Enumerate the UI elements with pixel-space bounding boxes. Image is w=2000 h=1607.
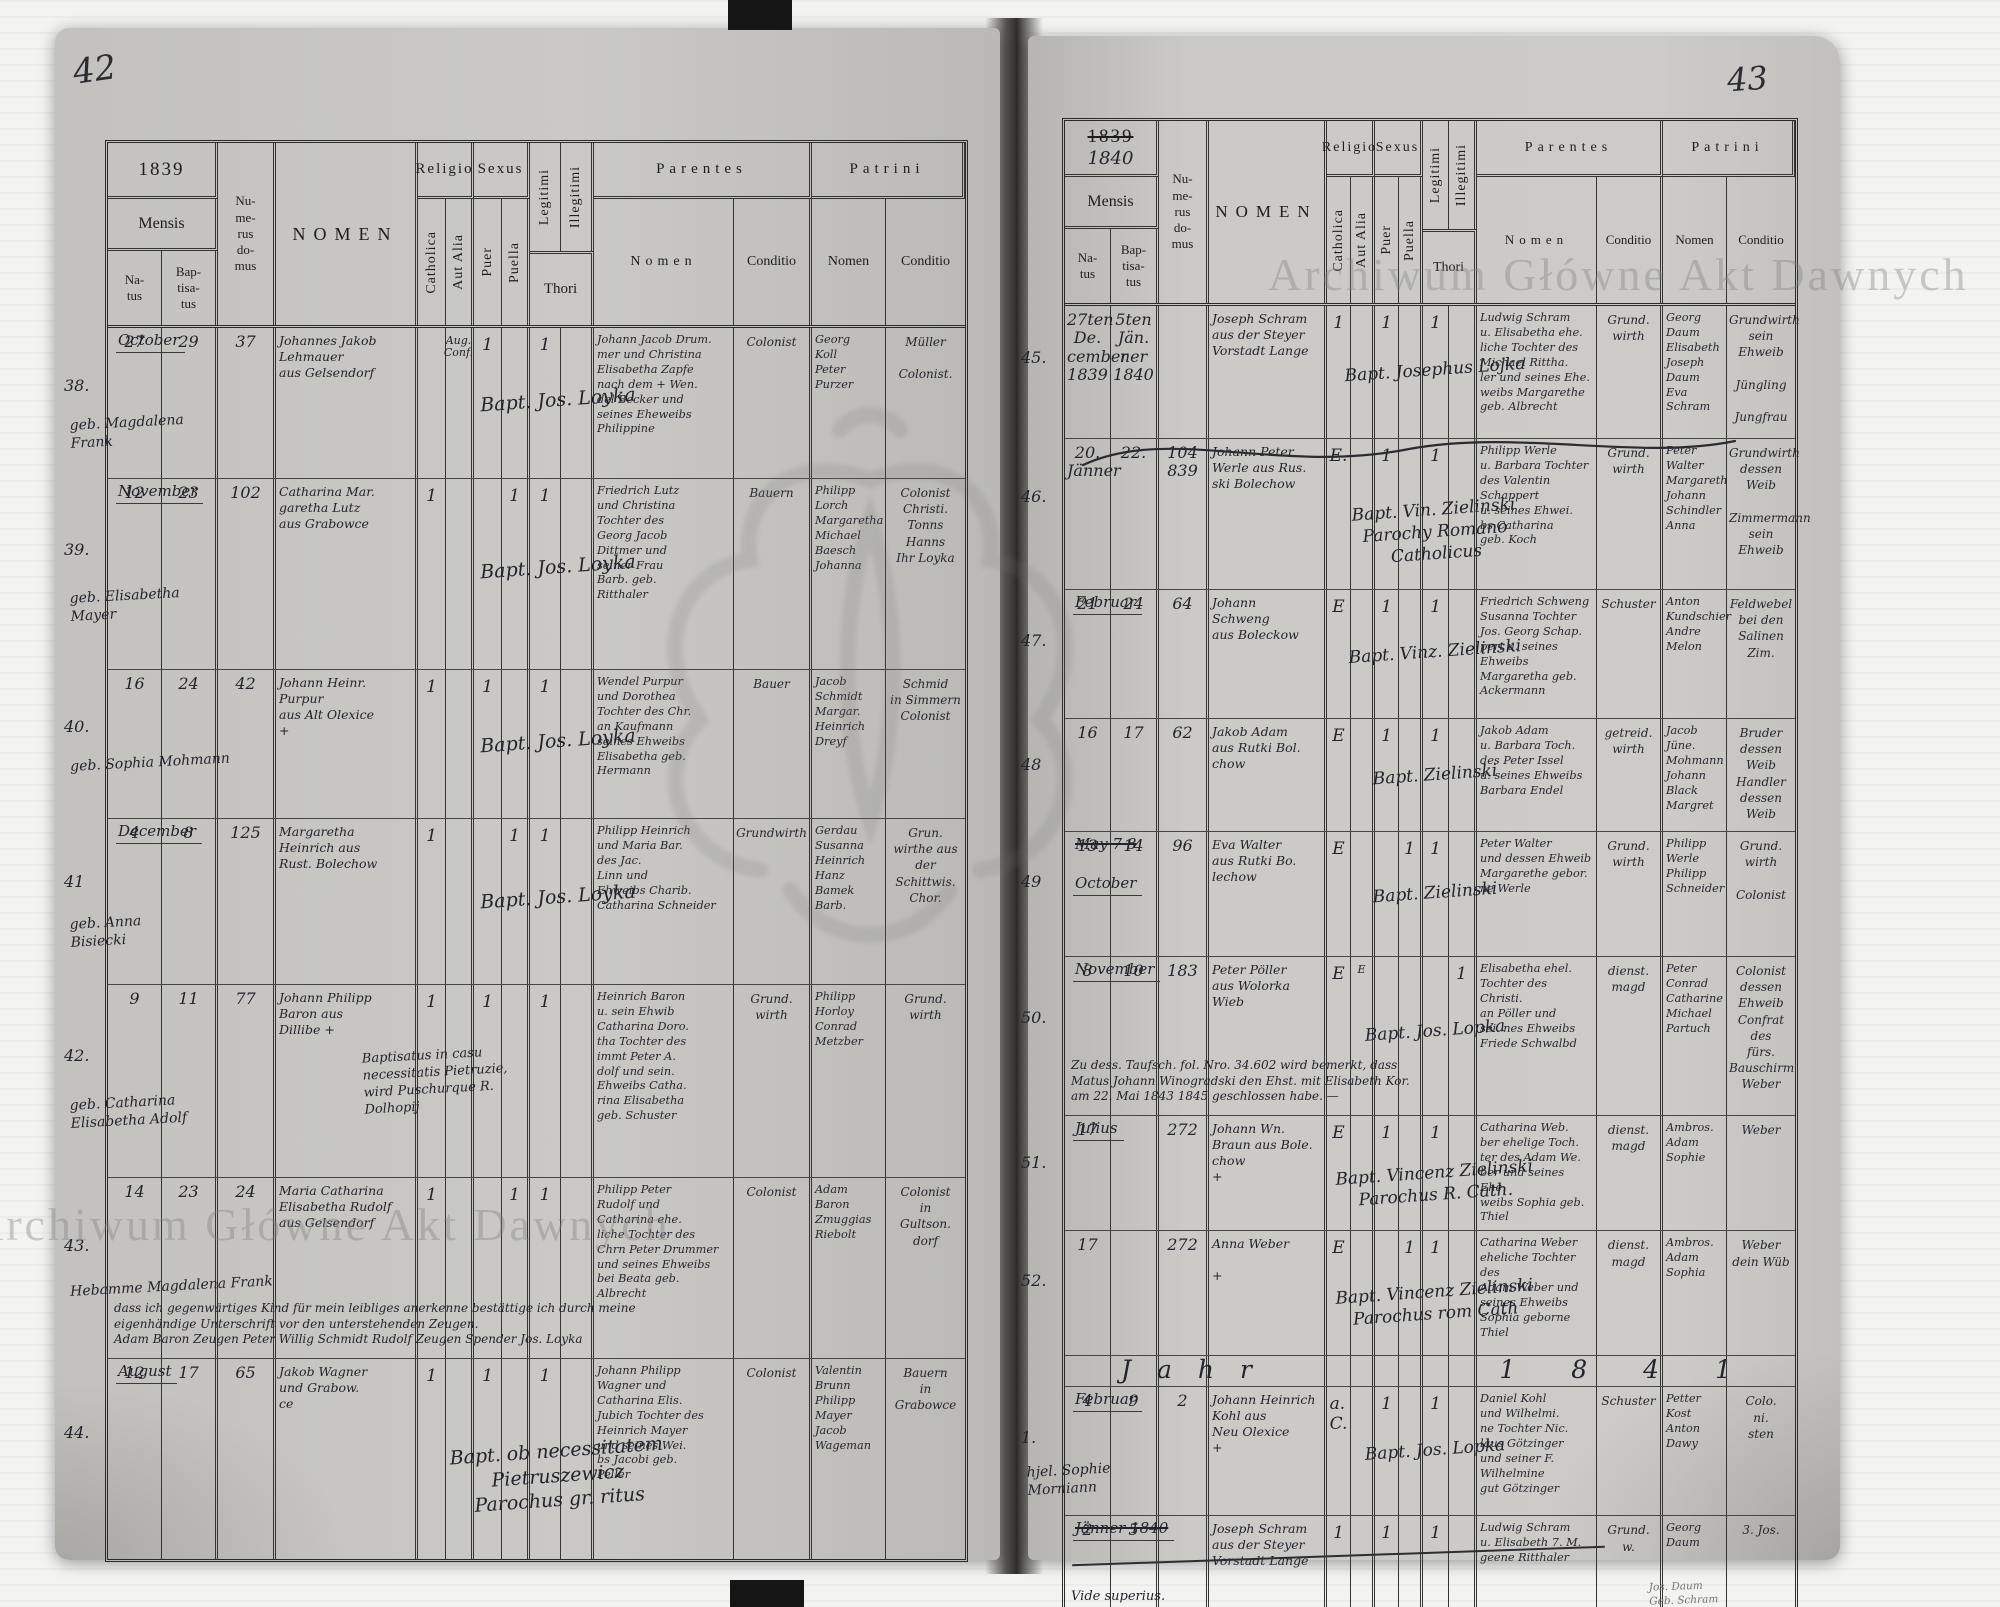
entry-month: May 7 8October (1073, 835, 1142, 896)
entry-parents-condition: Grundwirth (734, 819, 812, 984)
table-header-right: 1839 1840 Mensis Na- tus Bap- tisa- tus … (1065, 121, 1795, 306)
entry-number: 47. (1021, 631, 1046, 650)
col-header-puer: Puer (1375, 177, 1399, 303)
entry-godparents-condition: Weber dein Wüb (1727, 1231, 1795, 1355)
entry-godparents-names: Philipp Werle Philipp Schneider (1663, 832, 1727, 956)
entry-house-number: 37 (218, 328, 276, 478)
entry-baptisatus-day: 24 (162, 670, 218, 818)
col-header-nomen: NOMEN (276, 143, 418, 325)
entry-godparents-names: Philipp Horloy Conrad Metzber (812, 985, 886, 1177)
entry-house-number: 272 (1159, 1116, 1209, 1230)
entry-child-name: Joseph Schram aus der Steyer Vorstadt La… (1209, 1516, 1327, 1607)
entry-house-number: 77 (218, 985, 276, 1177)
col-header-puella: Puella (502, 199, 530, 325)
entry-house-number: 102 (218, 479, 276, 669)
register-entry-row: 131496Eva Walter aus Rutki Bo. lechowE11… (1065, 831, 1795, 956)
entry-number: 39. (64, 540, 89, 559)
entry-child-name: Jakob Wagner und Grabow. ce (276, 1359, 418, 1559)
entry-number: 45. (1021, 348, 1046, 367)
entry-parents-condition: Grund. wirth (1597, 306, 1663, 438)
entry-godparents-names: Georg Daum Elisabeth Joseph Daum Eva Sch… (1663, 306, 1727, 438)
entry-witness-note: dass ich gegenwärtiges Kind für mein lei… (114, 1301, 734, 1348)
entry-number: 46. (1021, 487, 1046, 506)
entry-month-struck: Jänner 1840 (1075, 1519, 1168, 1539)
entry-godparents-condition: Grun. wirthe aus der Schittwis. Chor. (886, 819, 965, 984)
entry-parents-condition: getreid. wirth (1597, 719, 1663, 831)
register-table-left: 1839 Mensis Na- tus Bap- tisa- tus Nu- m… (105, 140, 968, 1562)
entry-godparents-condition: Colonist Christi. Tonns Hanns Ihr Loyka (886, 479, 965, 669)
entry-natus-day: 27ten De. cember 1839 (1065, 306, 1111, 438)
entry-godparents-names: Gerdau Susanna Heinrich Hanz Bamek Barb. (812, 819, 886, 984)
col-header-catholica: Catholica (1327, 177, 1351, 303)
entry-number: 51. (1021, 1153, 1046, 1172)
col-header-mensis: Mensis (108, 199, 218, 251)
register-entry-row: 25Joseph Schram aus der Steyer Vorstadt … (1065, 1515, 1795, 1607)
entry-godparents-condition: Müller Colonist. (886, 328, 965, 478)
col-header-natus: Na- tus (108, 251, 162, 325)
entry-godparents-names: Adam Baron Zmuggias Riebolt (812, 1178, 886, 1358)
col-header-parentes: Parentes (594, 143, 812, 199)
entry-baptisatus-day: 17 (1111, 719, 1159, 831)
entry-natus-day: 16 (108, 670, 162, 818)
year-divider-label: Jahr (1121, 1354, 1278, 1387)
entry-parents-condition: Schuster (1597, 590, 1663, 718)
entry-house-number: 125 (218, 819, 276, 984)
entry-house-number: 62 (1159, 719, 1209, 831)
col-header-patrini-conditio: Conditio (1727, 177, 1795, 303)
col-header-legitimi: Legitimi (530, 143, 561, 251)
register-entry-row: 20. Jänner22.104 839Johann Peter Werle a… (1065, 438, 1795, 589)
register-table-right: 1839 1840 Mensis Na- tus Bap- tisa- tus … (1062, 118, 1798, 1607)
entry-number: 38. (64, 376, 89, 395)
entry-sex-boy-mark: 1 (1375, 1516, 1399, 1607)
entry-month-new: October (1075, 874, 1136, 894)
col-header-parentes-conditio: Conditio (1597, 177, 1663, 303)
col-header-illegitimi: Illegitimi (1449, 121, 1477, 229)
entry-number: 43. (64, 1236, 89, 1255)
entry-month: Februar (1073, 1390, 1142, 1412)
entry-natus-day: 12 (108, 1359, 162, 1559)
register-entry-row: 810183Peter Pöller aus Wolorka WiebEE1El… (1065, 956, 1795, 1115)
col-header-patrini-conditio: Conditio (886, 199, 965, 325)
col-header-legitimi: Legitimi (1423, 121, 1449, 229)
entry-godparents-condition: Weber (1727, 1116, 1795, 1230)
binding-tape-top (728, 0, 792, 30)
register-entry-row: 17272Johann Wn. Braun aus Bole. chow +E1… (1065, 1115, 1795, 1230)
entry-parents-condition: Bauer (734, 670, 812, 818)
entry-number: 1. (1021, 1428, 1036, 1447)
year-struck: 1839 (1088, 126, 1134, 148)
entry-number: 44. (64, 1423, 89, 1442)
col-header-baptisatus: Bap- tisa- tus (162, 251, 218, 325)
register-entry-row: 48125Margaretha Heinrich aus Rust. Bolec… (108, 818, 965, 984)
entry-parents-condition: dienst. magd (1597, 1231, 1663, 1355)
entry-natus-day: 16 (1065, 719, 1111, 831)
entry-parents-condition: Colonist (734, 328, 812, 478)
col-header-patrini-nomen: Nomen (812, 199, 886, 325)
archival-scan: Archiwum Główne Akt Dawnych Archiwum Głó… (0, 0, 2000, 1607)
entry-illegitimate-mark (1449, 1516, 1477, 1607)
entry-godparents-names: Petter Kost Anton Dawy (1663, 1387, 1727, 1515)
binding-tape-bottom (730, 1580, 804, 1607)
col-header-parentes-nomen: Nomen (594, 199, 734, 325)
col-header-puer: Puer (474, 199, 502, 325)
entry-month: Februar (1073, 593, 1142, 615)
col-header-illegitimi: Illegitimi (561, 143, 594, 251)
entry-number: 42. (64, 1046, 89, 1065)
entry-number: 52. (1021, 1271, 1046, 1290)
entry-godparents-condition: Grund. wirth (886, 985, 965, 1177)
entry-godparents-names: Philipp Lorch Margaretha Michael Baesch … (812, 479, 886, 669)
entry-godparents-names: Jacob Jüne. Mohmann Johann Black Margret (1663, 719, 1727, 831)
entry-number: 41 (64, 872, 84, 891)
col-header-puella: Puella (1399, 177, 1423, 303)
entry-month: December (116, 822, 202, 844)
entry-godparents-condition: Bauern in Grabowce (886, 1359, 965, 1559)
col-header-sexus: Sexus (474, 143, 530, 199)
entry-month: November (1073, 960, 1160, 982)
col-header-mensis: Mensis (1065, 177, 1159, 229)
entry-sex-girl-mark (1399, 1516, 1423, 1607)
col-header-thori: Thori (1423, 229, 1477, 303)
entry-godparents-condition: Colo. ni. sten (1727, 1387, 1795, 1515)
entry-godparents-names: Georg Koll Peter Purzer (812, 328, 886, 478)
entry-house-number: 64 (1159, 590, 1209, 718)
register-entry-row: 272937Johannes Jakob Lehmauer aus Gelsen… (108, 328, 965, 478)
register-entry-row: 161762Jakob Adam aus Rutki Bol. chowE11J… (1065, 718, 1795, 831)
entries-right: 27ten De. cember 18395ten Jän. ner 1840J… (1065, 306, 1795, 1607)
entry-godparents-names: Jacob Schmidt Margar. Heinrich Dreyf (812, 670, 886, 818)
entry-godparents-condition: Bruder dessen Weib Handler dessen Weib (1727, 719, 1795, 831)
col-header-thori: Thori (530, 251, 594, 325)
entry-month-struck: May 7 8 (1075, 835, 1136, 855)
col-header-aut-alia: Aut Alia (1351, 177, 1375, 303)
register-entry-row: 162442Johann Heinr. Purpur aus Alt Olexi… (108, 669, 965, 818)
entry-religion-other-mark (1351, 1516, 1375, 1607)
entry-baptisatus-day: 23 (162, 479, 218, 669)
entry-religion-catholic-mark: 1 (1327, 1516, 1351, 1607)
col-header-natus: Na- tus (1065, 229, 1111, 303)
col-header-patrini-nomen: Nomen (1663, 177, 1727, 303)
year-divider: Jahr1841 (1121, 1354, 1787, 1387)
entry-house-number: 65 (218, 1359, 276, 1559)
entry-baptisatus-day: 17 (162, 1359, 218, 1559)
col-header-catholica: Catholica (418, 199, 446, 325)
entry-natus-day: 12 (108, 479, 162, 669)
entry-parents-condition: Grund. wirth (1597, 832, 1663, 956)
entry-month: August (116, 1362, 177, 1384)
entry-godparents-names: Anton Kundschier Andre Melon (1663, 590, 1727, 718)
register-entry-row: 212464Johann Schweng aus BoleckowE11Frie… (1065, 589, 1795, 718)
table-header-left: 1839 Mensis Na- tus Bap- tisa- tus Nu- m… (108, 143, 965, 328)
entry-month: October (116, 331, 185, 353)
entry-child-name: Catharina Mar. garetha Lutz aus Grabowce (276, 479, 418, 669)
entry-number: 40. (64, 717, 89, 736)
entry-baptisatus-day: 8 (162, 819, 218, 984)
entry-parents-condition: Bauern (734, 479, 812, 669)
register-entry-row: 1223102Catharina Mar. garetha Lutz aus G… (108, 478, 965, 669)
col-header-parentes-nomen: Nomen (1477, 177, 1597, 303)
entry-house-number: 96 (1159, 832, 1209, 956)
page-number-left: 42 (70, 47, 118, 93)
col-header-baptisatus: Bap- tisa- tus (1111, 229, 1159, 303)
entry-godparents-names: Ambros. Adam Sophie (1663, 1116, 1727, 1230)
register-entry-row: 91177Johann Philipp Baron aus Dillibe +1… (108, 984, 965, 1177)
col-header-religio: Religio (418, 143, 474, 199)
col-header-sexus: Sexus (1375, 121, 1423, 177)
entry-house-number: 42 (218, 670, 276, 818)
entry-godparents-condition: Colonist dessen Ehweib Confrat des fürs.… (1727, 957, 1795, 1115)
year-divider-row: Jahr1841 (1065, 1355, 1795, 1386)
entry-natus-day (1065, 1356, 1111, 1386)
col-header-religio: Religio (1327, 121, 1375, 177)
page-number-right: 43 (1726, 59, 1769, 100)
year-label: 1839 (139, 159, 185, 181)
col-header-aut-alia: Aut Alia (446, 199, 474, 325)
entry-number: 50. (1021, 1008, 1046, 1027)
entry-vide-note: Vide superius. (1071, 1589, 1165, 1606)
register-entry-row: 142324Maria Catharina Elisabetha Rudolf … (108, 1177, 965, 1358)
entry-pencil-note: Jos. Daum Geb. Schram (1649, 1576, 1800, 1607)
entry-baptisatus-day: 11 (162, 985, 218, 1177)
entry-godparents-names: Ambros. Adam Sophia (1663, 1231, 1727, 1355)
entry-parents-condition: Colonist (734, 1178, 812, 1358)
entry-baptisatus-day (1111, 1231, 1159, 1355)
register-entry-row: 492Johann Heinrich Kohl aus Neu Olexice … (1065, 1386, 1795, 1515)
col-header-numerus-domus: Nu- me- rus do- mus (218, 143, 276, 325)
entry-parents-condition: Schuster (1597, 1387, 1663, 1515)
col-header-parentes-conditio: Conditio (734, 199, 812, 325)
entry-godparents-condition: Schmid in Simmern Colonist (886, 670, 965, 818)
entry-parents-condition: dienst. magd (1597, 1116, 1663, 1230)
entry-natus-day: 17 (1065, 1231, 1111, 1355)
col-header-patrini: Patrini (1663, 121, 1795, 177)
col-header-nomen: NOMEN (1209, 121, 1327, 303)
entry-natus-day: 9 (108, 985, 162, 1177)
entry-house-number: 272 (1159, 1231, 1209, 1355)
entries-left: 272937Johannes Jakob Lehmauer aus Gelsen… (108, 328, 965, 1559)
register-entry-row: 17272Anna Weber +E11Catharina Weber ehel… (1065, 1230, 1795, 1355)
entry-godparents-condition: Colonist in Gultson. dorf (886, 1178, 965, 1358)
col-header-parentes: Parentes (1477, 121, 1663, 177)
col-header-numerus-domus: Nu- me- rus do- mus (1159, 121, 1209, 303)
year-divider-year: 1841 (1499, 1354, 1787, 1387)
col-header-patrini: Patrini (812, 143, 965, 199)
ink-flourish (1079, 431, 1739, 475)
entry-legitimate-mark: 1 (1423, 1516, 1449, 1607)
year-cell: 1839 (108, 143, 218, 199)
entry-month: Julius (1073, 1119, 1124, 1141)
register-entry-row: 27ten De. cember 18395ten Jän. ner 1840J… (1065, 306, 1795, 438)
entry-witness-note: Zu dess. Taufsch. fol. Nro. 34.602 wird … (1071, 1058, 1691, 1105)
entry-natus-day: 4 (108, 819, 162, 984)
entry-godparents-condition: Feldwebel bei den Salinen Zim. (1727, 590, 1795, 718)
register-page-left: 42 1839 Mensis Na- tus Bap- tisa- tus Nu… (55, 28, 1000, 1560)
register-entry-row: 121765Jakob Wagner und Grabow. ce111Joha… (108, 1358, 965, 1559)
entry-godparents-names: Valentin Brunn Philipp Mayer Jacob Wagem… (812, 1359, 886, 1559)
year-cell: 1839 1840 (1065, 121, 1159, 177)
entry-number: 48 (1021, 755, 1041, 774)
year-handwritten: 1840 (1088, 148, 1134, 169)
entry-parents-names: Ludwig Schram u. Elisabeth 7. M. geene R… (1477, 1516, 1597, 1607)
entry-month: Jänner 1840 (1073, 1519, 1174, 1541)
entry-house-number: 2 (1159, 1387, 1209, 1515)
entry-number: 49 (1021, 872, 1041, 891)
entry-house-number (1159, 306, 1209, 438)
entry-month: November (116, 482, 203, 504)
entry-parents-condition: Colonist (734, 1359, 812, 1559)
entry-baptisatus-day: 5ten Jän. ner 1840 (1111, 306, 1159, 438)
register-page-right: 43 1839 1840 Mensis Na- tus Bap- tisa- t… (1028, 36, 1840, 1560)
entry-godparents-condition: Grundwirth sein Ehweib Jüngling Jungfrau (1727, 306, 1795, 438)
entry-godparents-condition: Grund. wirth Colonist (1727, 832, 1795, 956)
entry-parents-condition: Grund. wirth (734, 985, 812, 1177)
